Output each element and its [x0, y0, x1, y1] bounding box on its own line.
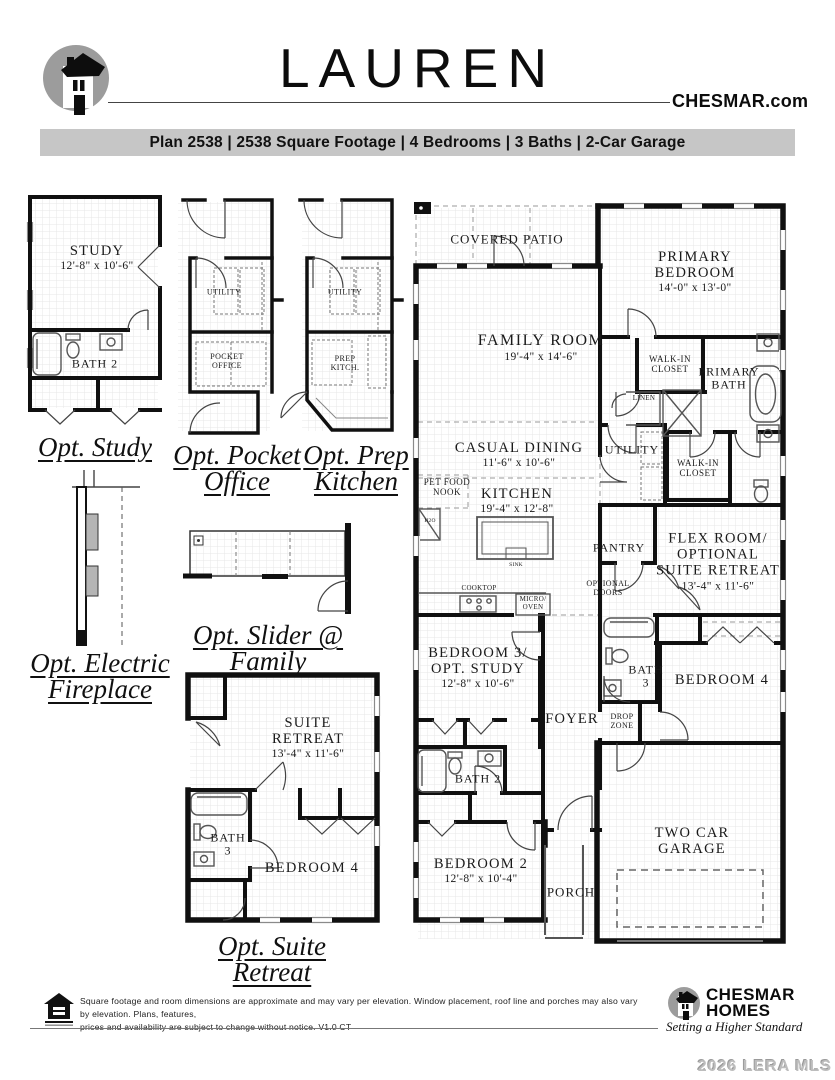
bath2-label: BATH 2 — [455, 772, 501, 785]
opt-suite-room-label: SUITE RETREAT 13'-4" x 11'-6" — [272, 715, 345, 761]
room-name: 3 — [628, 677, 663, 690]
mls-watermark: 2026 LERA MLS — [698, 1058, 832, 1076]
room-name: OFFICE — [210, 362, 244, 371]
room-dims: 19'-4" x 12'-8" — [480, 503, 553, 516]
room-name: SUITE — [272, 715, 345, 731]
room-name: CLOSET — [649, 364, 691, 374]
opt-slider-caption-2: Family — [230, 646, 306, 677]
drop-zone-label: DROP ZONE — [611, 713, 634, 731]
room-name: PRIMARY — [655, 249, 736, 265]
footer-brand: CHESMAR HOMES — [706, 987, 795, 1018]
cooktop-label: COOKTOP — [461, 585, 496, 593]
bath3-label: BATH 3 — [628, 664, 663, 691]
bedroom4-label: BEDROOM 4 — [675, 672, 769, 688]
opt-pocket-caption-2: Office — [204, 466, 270, 497]
room-name: OVEN — [520, 604, 547, 612]
opt-prep-caption-2: Kitchen — [314, 466, 398, 497]
family-room-label: FAMILY ROOM 19'-4" x 14'-6" — [478, 332, 604, 364]
room-name: GARAGE — [655, 841, 730, 857]
walk-in-closet-label: WALK-IN CLOSET — [649, 354, 691, 374]
opt-study-caption: Opt. Study — [38, 432, 152, 463]
bedroom3-label: BEDROOM 3/ OPT. STUDY 12'-8" x 10'-6" — [428, 645, 527, 691]
footer-divider — [30, 1028, 658, 1029]
room-name: BEDROOM 2 — [434, 856, 528, 872]
casual-dining-label: CASUAL DINING 11'-6" x 10'-6" — [455, 440, 583, 470]
room-dims: 12'-8" x 10'-6" — [428, 678, 527, 691]
h2o-label: H2O — [424, 518, 435, 524]
opt-prep-utility-label: UTILITY — [328, 289, 362, 298]
header-divider — [108, 102, 670, 103]
opt-electric-fireplace — [72, 470, 140, 645]
room-dims: 12'-8" x 10'-6" — [60, 260, 133, 273]
room-name: BATH — [628, 664, 663, 677]
room-dims: 14'-0" x 13'-0" — [655, 282, 736, 295]
chesmar-c-house-logo — [666, 985, 704, 1021]
opt-suite-bath-label: BATH 3 — [210, 832, 245, 859]
room-name: CLOSET — [677, 468, 719, 478]
room-name: BATH — [698, 379, 759, 392]
utility-label: UTILITY — [605, 443, 659, 456]
primary-bath-label: PRIMARY BATH — [698, 366, 759, 393]
porch-label: PORCH — [547, 886, 595, 901]
opt-pocket-office-label: POCKET OFFICE — [210, 353, 244, 371]
room-name: KITCHEN — [480, 486, 553, 502]
room-name: STUDY — [60, 243, 133, 259]
room-name: OPTIONAL — [656, 547, 780, 563]
garage-label: TWO CAR GARAGE — [655, 825, 730, 857]
room-name: RETREAT — [272, 731, 345, 747]
pantry-label: PANTRY — [593, 541, 645, 554]
floorplan-flyer-page: LAUREN CHESMAR.com Plan 2538 | 2538 Squa… — [0, 0, 835, 1080]
room-name: BEDROOM — [655, 265, 736, 281]
room-name: PET FOOD — [424, 477, 471, 487]
room-dims: 11'-6" x 10'-6" — [455, 457, 583, 470]
room-name: PRIMARY — [698, 366, 759, 379]
plan-summary-bar: Plan 2538 | 2538 Square Footage | 4 Bedr… — [40, 129, 795, 156]
opt-prep-kitchen-label: PREP KITCH. — [331, 355, 360, 373]
room-name: WALK-IN — [649, 354, 691, 364]
room-name: CASUAL DINING — [455, 440, 583, 456]
flex-room-label: FLEX ROOM/ OPTIONAL SUITE RETREAT 13'-4"… — [656, 531, 780, 594]
room-name: NOOK — [424, 487, 471, 497]
room-name: BATH — [210, 832, 245, 845]
room-name: KITCH. — [331, 364, 360, 373]
micro-oven-label: MICRO/ OVEN — [520, 596, 547, 612]
kitchen-label: KITCHEN 19'-4" x 12'-8" — [480, 486, 553, 516]
primary-bedroom-label: PRIMARY BEDROOM 14'-0" x 13'-0" — [655, 249, 736, 295]
opt-suite-bedroom4-label: BEDROOM 4 — [265, 860, 359, 876]
brand-line: HOMES — [706, 1003, 795, 1019]
room-dims: 12'-8" x 10'-4" — [434, 873, 528, 886]
disclaimer-line: Square footage and room dimensions are a… — [80, 995, 645, 1021]
opt-study-room-label: STUDY 12'-8" x 10'-6" — [60, 243, 133, 273]
walk-in-closet2-label: WALK-IN CLOSET — [677, 458, 719, 478]
equal-housing-icon — [42, 992, 76, 1028]
optional-doors-label: OPTIONAL DOORS — [586, 580, 629, 598]
opt-study-bath-label: BATH 2 — [72, 357, 118, 370]
room-name: TWO CAR — [655, 825, 730, 841]
covered-patio-label: COVERED PATIO — [450, 233, 563, 248]
room-name: SUITE RETREAT — [656, 563, 780, 579]
patio-post — [414, 202, 431, 214]
room-dims: 19'-4" x 14'-6" — [478, 351, 604, 364]
bedroom2-label: BEDROOM 2 12'-8" x 10'-4" — [434, 856, 528, 886]
plan-summary-text: Plan 2538 | 2538 Square Footage | 4 Bedr… — [150, 134, 686, 152]
room-name: OPT. STUDY — [428, 661, 527, 677]
opt-pocket-utility-label: UTILITY — [207, 289, 241, 298]
room-name: FLEX ROOM/ — [656, 531, 780, 547]
sink-label: SINK — [509, 562, 523, 568]
brand-tagline: Setting a Higher Standard — [666, 1019, 802, 1035]
room-dims: 13'-4" x 11'-6" — [656, 580, 780, 593]
pet-food-nook-label: PET FOOD NOOK — [424, 477, 471, 497]
room-name: 3 — [210, 845, 245, 858]
room-name: BEDROOM 3/ — [428, 645, 527, 661]
opt-suite-caption-2: Retreat — [233, 957, 311, 988]
room-name: WALK-IN — [677, 458, 719, 468]
room-name: ZONE — [611, 722, 634, 731]
room-dims: 13'-4" x 11'-6" — [272, 748, 345, 761]
room-name: FAMILY ROOM — [478, 332, 604, 350]
opt-fireplace-caption-2: Fireplace — [48, 674, 152, 705]
linen-label: LINEN — [633, 395, 656, 403]
room-name: DOORS — [586, 589, 629, 598]
foyer-label: FOYER — [545, 711, 599, 727]
website-link[interactable]: CHESMAR.com — [672, 91, 808, 112]
